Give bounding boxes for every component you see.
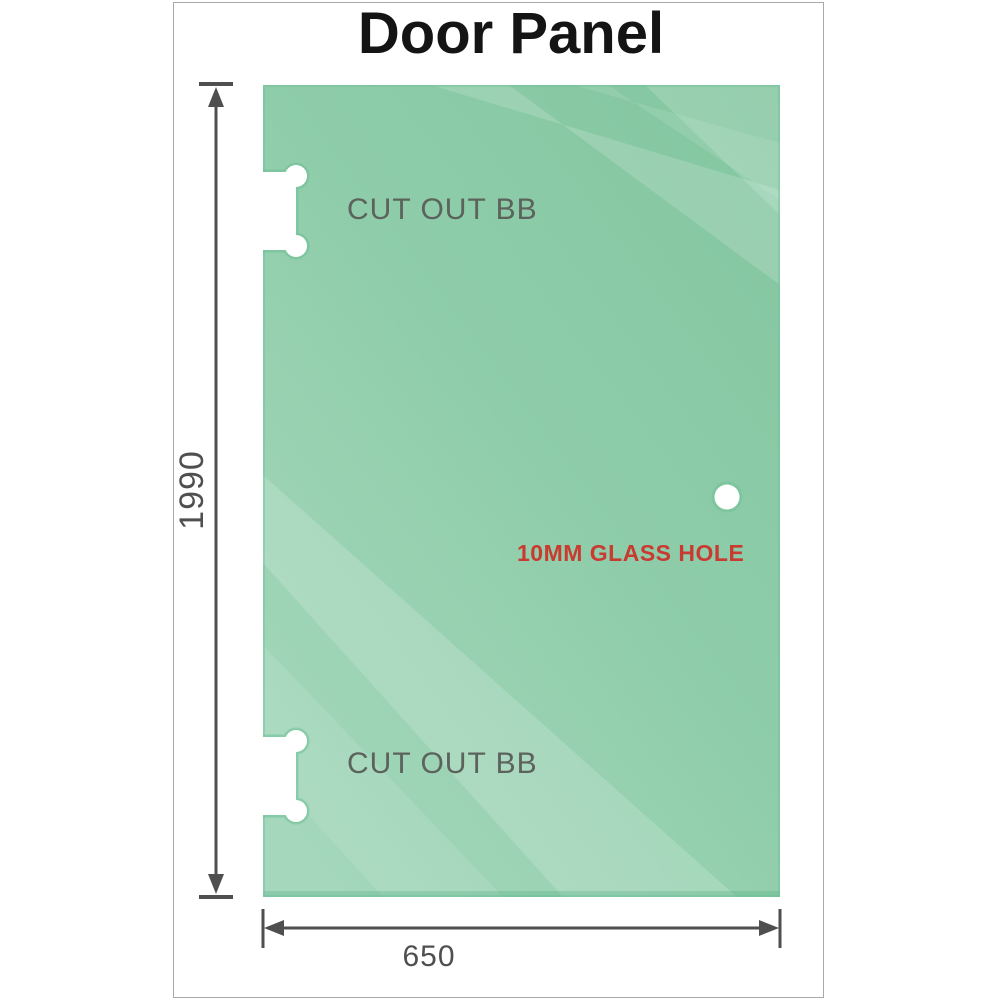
glass-hole-label: 10MM GLASS HOLE bbox=[517, 540, 744, 566]
height-dimension-value: 1990 bbox=[176, 450, 208, 530]
page-title: Door Panel bbox=[261, 4, 761, 64]
width-dimension-value: 650 bbox=[402, 941, 455, 973]
cutout-label-bottom: CUT OUT BB bbox=[347, 747, 538, 781]
cutout-label-top: CUT OUT BB bbox=[347, 193, 538, 227]
glass-hole bbox=[712, 482, 743, 513]
